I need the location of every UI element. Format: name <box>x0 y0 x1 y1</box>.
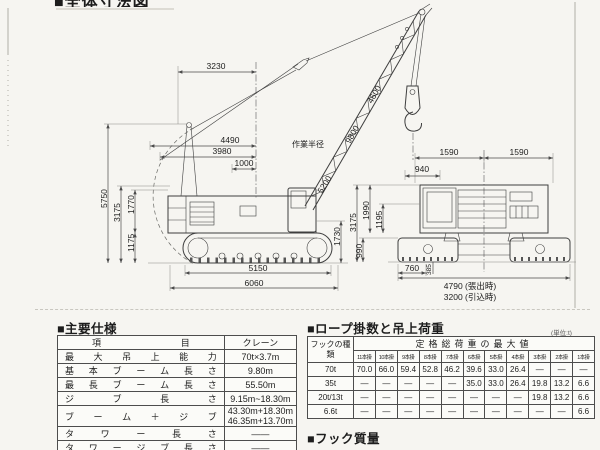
table-row: 項 目 クレーン <box>58 336 297 350</box>
load-value: 35.0 <box>463 377 485 391</box>
load-value: — <box>354 391 376 405</box>
load-value: 26.4 <box>507 363 529 377</box>
spec-row-value: 70t×3.7m <box>224 350 296 364</box>
spec-row-value: ―― <box>224 427 296 441</box>
scanned-spec-sheet: ■全体寸法図 <box>0 0 600 450</box>
fall-header: 11本掛 <box>354 351 376 363</box>
dim-top-width: 3230 <box>207 61 226 71</box>
load-value: — <box>529 405 551 419</box>
dim-cab-height: 1730 <box>332 227 342 246</box>
dim-track-length: 5150 <box>249 263 268 273</box>
load-value: 26.4 <box>507 377 529 391</box>
table-row: 6.6t — — — — — — — — — — 6.6 <box>308 405 595 419</box>
spec-row-label: 最 大 吊 上 能 力 <box>58 350 225 364</box>
dim-rear-height-upper: 1990 <box>361 201 371 220</box>
hook-type: 70t <box>308 363 354 377</box>
load-value: 33.0 <box>485 363 507 377</box>
spec-row-label: 最 長 ブ ー ム 長 さ <box>58 378 225 392</box>
max-load-header: 定格総荷重の最大値 <box>354 337 595 351</box>
spec-table: 項 目 クレーン 最 大 吊 上 能 力 70t×3.7m 基 本 ブ ー ム … <box>57 335 297 450</box>
load-value: — <box>573 363 595 377</box>
dim-gauge-right: 1590 <box>510 147 529 157</box>
dim-width-extended: 4790 (張出時) <box>444 281 497 291</box>
spec-row-label: 基 本 ブ ー ム 長 さ <box>58 364 225 378</box>
fall-header: 3本掛 <box>529 351 551 363</box>
dim-height-total: 5750 <box>99 189 109 208</box>
dim-drum-width: 940 <box>415 164 429 174</box>
load-value: 19.8 <box>529 377 551 391</box>
table-row: 20t/13t — — — — — — — — 19.8 13.2 6.6 <box>308 391 595 405</box>
hook-type-header: フックの種類 <box>308 337 354 363</box>
fall-header: 6本掛 <box>463 351 485 363</box>
load-value: 66.0 <box>375 363 397 377</box>
working-radius-label: 作業半径 <box>292 139 324 149</box>
load-table-heading: ■ロープ掛数と吊上荷重 <box>307 318 444 337</box>
load-value: 70.0 <box>354 363 376 377</box>
spec-row-label: タ ワ ー ジ ブ 長 さ <box>58 441 225 450</box>
spec-row-label: タ ワ ー 長 さ <box>58 427 225 441</box>
dim-boom-mid: 9800 <box>343 123 361 145</box>
fall-header: 7本掛 <box>441 351 463 363</box>
side-view-drawing: 3230 4490 3980 1000 4600 9800 5200 5750 … <box>99 4 432 291</box>
spec-col-value: クレーン <box>224 336 296 350</box>
dim-overall-length: 6060 <box>245 278 264 288</box>
load-value: 33.0 <box>485 377 507 391</box>
load-value: 39.6 <box>463 363 485 377</box>
dim-rear-height-mid: 1195 <box>374 210 384 229</box>
dim-height-upper: 1770 <box>126 195 136 214</box>
load-value: — <box>354 405 376 419</box>
load-value: — <box>463 391 485 405</box>
dim-rear-height-total: 3175 <box>348 213 358 232</box>
load-value: — <box>375 377 397 391</box>
load-value: — <box>441 391 463 405</box>
spec-row-value: 9.15m~18.30m <box>224 392 296 406</box>
table-row: ブ ー ム ＋ ジ ブ 43.30m+18.30m 46.35m+13.70m <box>58 406 297 427</box>
fall-header: 4本掛 <box>507 351 529 363</box>
fall-header: 10本掛 <box>375 351 397 363</box>
dim-clearance: 385 <box>426 264 433 275</box>
spec-row-value: 43.30m+18.30m 46.35m+13.70m <box>224 406 296 427</box>
spec-col-item: 項 目 <box>58 336 225 350</box>
load-value: — <box>507 405 529 419</box>
load-value: — <box>485 405 507 419</box>
load-value: 46.2 <box>441 363 463 377</box>
load-value: — <box>419 391 441 405</box>
load-value: — <box>485 391 507 405</box>
dim-boom-lower: 5200 <box>315 173 334 195</box>
table-row: 基 本 ブ ー ム 長 さ 9.80m <box>58 364 297 378</box>
load-table: フックの種類 定格総荷重の最大値 11本掛 10本掛 9本掛 8本掛 7本掛 6… <box>307 336 595 419</box>
fall-header: 2本掛 <box>551 351 573 363</box>
table-row: 35t — — — — — 35.0 33.0 26.4 19.8 13.2 6… <box>308 377 595 391</box>
crane-dimension-drawing: 3230 4490 3980 1000 4600 9800 5200 5750 … <box>0 0 600 315</box>
dim-height-track: 1175 <box>126 233 136 252</box>
load-value: 6.6 <box>573 391 595 405</box>
table-row: ジ ブ 長 さ 9.15m~18.30m <box>58 392 297 406</box>
dim-upper-c: 1000 <box>235 158 254 168</box>
hook-type: 20t/13t <box>308 391 354 405</box>
hook-mass-heading: ■フック質量 <box>307 428 380 447</box>
load-value: — <box>354 377 376 391</box>
load-value: — <box>463 405 485 419</box>
load-value: — <box>397 405 419 419</box>
table-row: 70t 70.0 66.0 59.4 52.8 46.2 39.6 33.0 2… <box>308 363 595 377</box>
load-value: — <box>419 377 441 391</box>
load-value: — <box>375 391 397 405</box>
load-value: 6.6 <box>573 377 595 391</box>
load-value: 13.2 <box>551 377 573 391</box>
load-value: — <box>397 377 419 391</box>
spec-row-value: 55.50m <box>224 378 296 392</box>
table-row: タ ワ ー ジ ブ 長 さ ―― <box>58 441 297 450</box>
load-value: — <box>441 405 463 419</box>
load-value: — <box>551 363 573 377</box>
table-row: タ ワ ー 長 さ ―― <box>58 427 297 441</box>
dim-upper-b: 3980 <box>213 146 232 156</box>
spec-value-line: 43.30m+18.30m <box>228 406 293 416</box>
load-value: 6.6 <box>573 405 595 419</box>
dim-shoe-width: 760 <box>405 263 419 273</box>
spec-row-value: 9.80m <box>224 364 296 378</box>
hook-type: 6.6t <box>308 405 354 419</box>
table-row: 最 大 吊 上 能 力 70t×3.7m <box>58 350 297 364</box>
load-value: 52.8 <box>419 363 441 377</box>
load-value: — <box>375 405 397 419</box>
load-value: 59.4 <box>397 363 419 377</box>
load-value: — <box>551 405 573 419</box>
rear-view-drawing: 1590 1590 940 3175 1990 1195 990 760 385… <box>348 147 576 302</box>
spec-row-label: ジ ブ 長 さ <box>58 392 225 406</box>
section-divider <box>35 309 590 310</box>
spec-row-value: ―― <box>224 441 296 450</box>
load-value: — <box>419 405 441 419</box>
load-value: — <box>441 377 463 391</box>
fall-header: 9本掛 <box>397 351 419 363</box>
fall-header: 1本掛 <box>573 351 595 363</box>
dim-upper-a: 4490 <box>221 135 240 145</box>
load-value: 19.8 <box>529 391 551 405</box>
table-row: 最 長 ブ ー ム 長 さ 55.50m <box>58 378 297 392</box>
load-value: — <box>529 363 551 377</box>
hook-type: 35t <box>308 377 354 391</box>
fall-header: 5本掛 <box>485 351 507 363</box>
load-value: — <box>507 391 529 405</box>
spec-value-line: 46.35m+13.70m <box>228 416 293 426</box>
table-row: フックの種類 定格総荷重の最大値 <box>308 337 595 351</box>
dim-width-retracted: 3200 (引込時) <box>444 292 497 302</box>
dim-height-body: 3175 <box>112 203 122 222</box>
load-value: 13.2 <box>551 391 573 405</box>
dim-gauge-left: 1590 <box>440 147 459 157</box>
dim-rear-track-height: 990 <box>354 244 364 258</box>
fall-header: 8本掛 <box>419 351 441 363</box>
spec-row-label: ブ ー ム ＋ ジ ブ <box>58 406 225 427</box>
load-value: — <box>397 391 419 405</box>
